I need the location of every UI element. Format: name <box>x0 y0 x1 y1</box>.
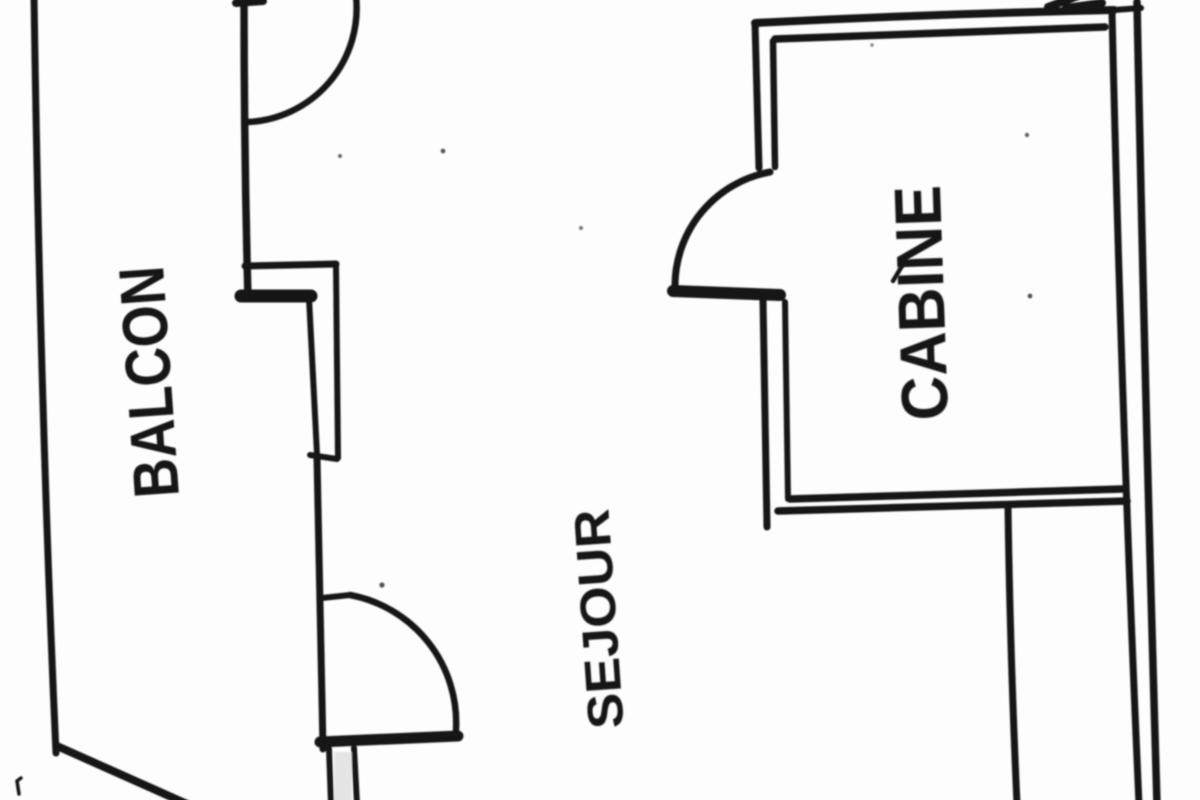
svg-text:SEJOUR: SEJOUR <box>563 507 634 730</box>
svg-text:BALCON: BALCON <box>105 264 193 500</box>
svg-text:CABINE: CABINE <box>880 184 962 421</box>
